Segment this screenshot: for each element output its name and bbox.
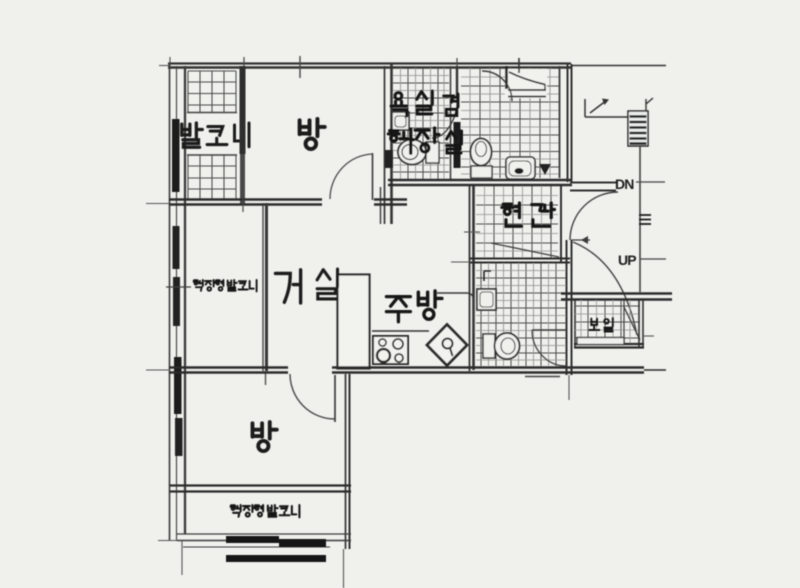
svg-text:DN: DN <box>615 176 634 192</box>
svg-text:UP: UP <box>618 252 636 268</box>
